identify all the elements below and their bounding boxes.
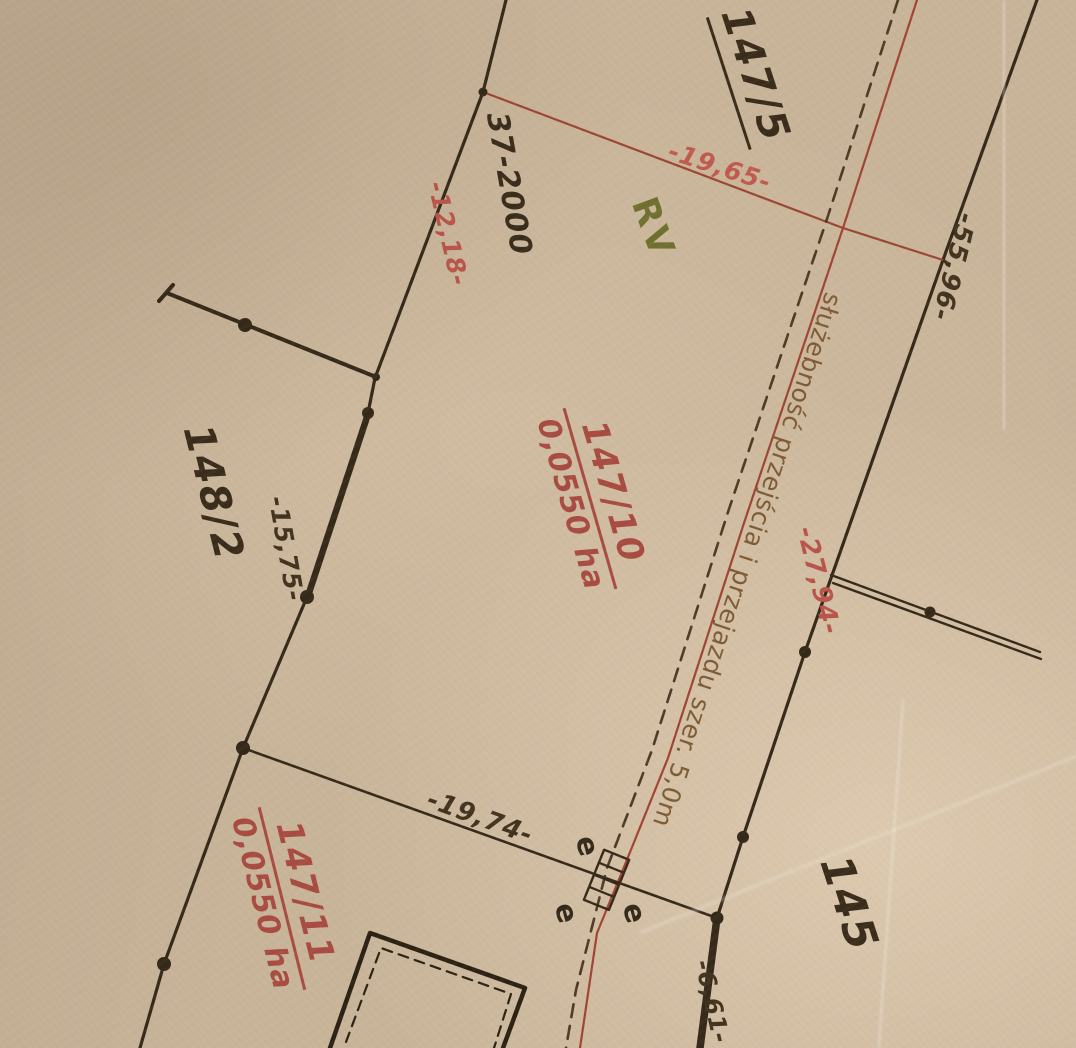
survey-linework: [0, 0, 1076, 1048]
building-outline: [330, 933, 525, 1048]
culvert-symbol: [584, 850, 629, 910]
cadastral-map-scan: 147/5 37-2000 -19,65- RV -12,18- -55,96-…: [0, 0, 1076, 1048]
fence-double-line: [831, 575, 1041, 659]
